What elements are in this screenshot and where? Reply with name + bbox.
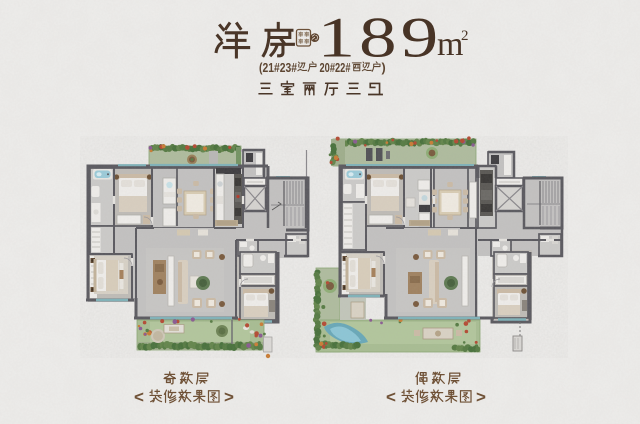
svg-text:2: 2	[461, 28, 469, 44]
svg-text:>: >	[224, 388, 234, 407]
svg-text:(21#23#: (21#23#	[259, 61, 297, 75]
svg-text:m: m	[437, 26, 463, 63]
svg-text:>: >	[476, 388, 486, 407]
svg-text:<: <	[134, 388, 144, 407]
svg-text:20#22#: 20#22#	[320, 61, 351, 75]
svg-text:189: 189	[317, 7, 442, 69]
svg-text:<: <	[386, 388, 396, 407]
svg-text:): )	[382, 61, 386, 75]
